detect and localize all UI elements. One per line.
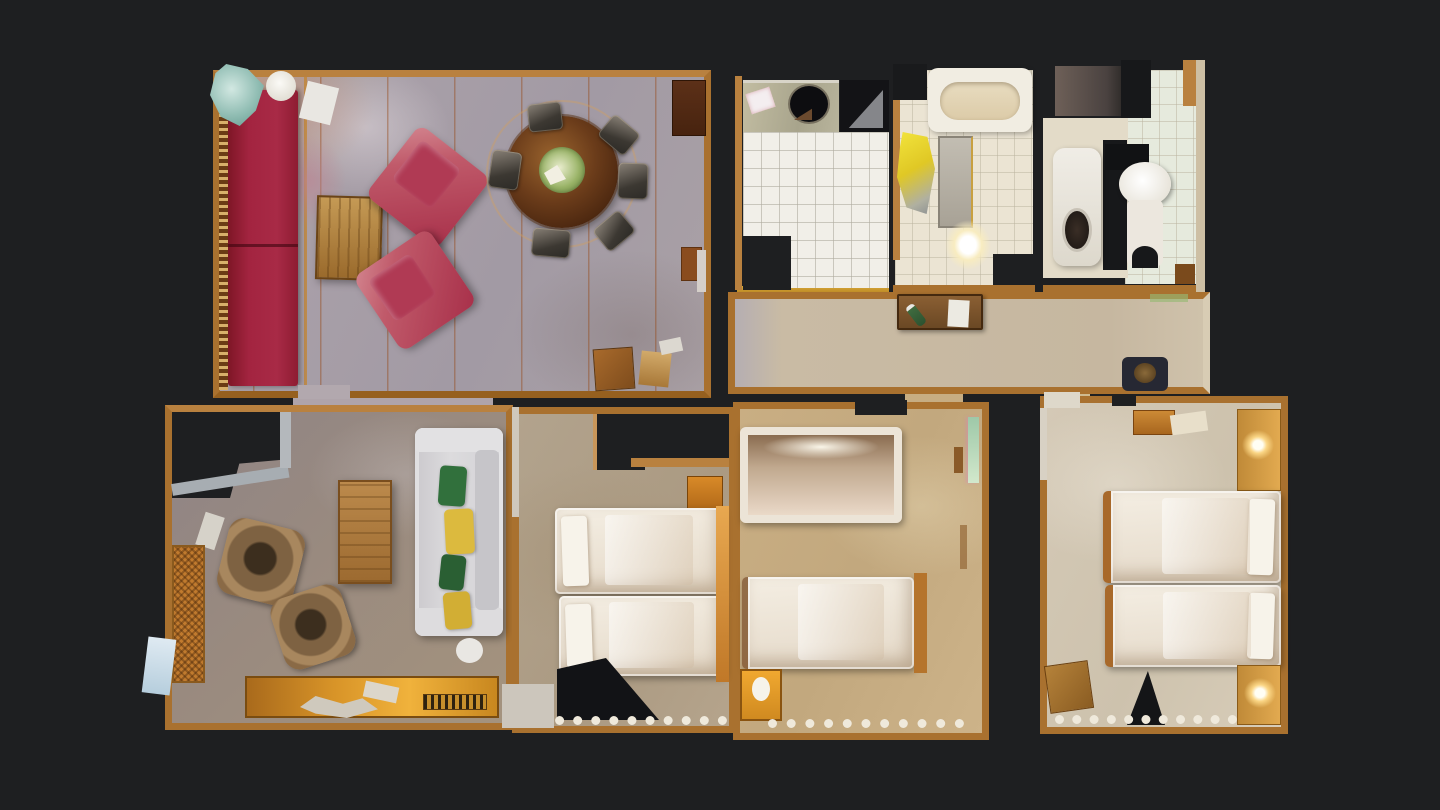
writing-desk <box>593 347 636 392</box>
radiator <box>172 545 205 683</box>
white-spot <box>456 638 483 663</box>
yellow-pillow <box>442 591 472 630</box>
wc-dark-panel <box>1055 66 1129 116</box>
toilet-pedestal <box>1127 200 1163 266</box>
door-leaf <box>697 250 706 292</box>
curtain-ruffle <box>768 719 964 728</box>
sofa-armrest <box>415 428 503 452</box>
room-bedroom-2 <box>733 402 989 740</box>
wall-gap <box>1112 394 1136 406</box>
orange-nightstand <box>740 669 782 721</box>
framed-bed <box>740 427 902 523</box>
duvet-fold <box>1163 592 1250 659</box>
duvet-fold <box>609 602 695 668</box>
duvet-fold <box>605 515 692 586</box>
bathtub <box>928 68 1032 132</box>
floorplan-canvas[interactable] <box>0 0 1440 810</box>
glowing-fixture <box>945 220 991 270</box>
wc-south-wall <box>1043 285 1196 292</box>
lamp <box>752 677 770 701</box>
kitchen-stove <box>840 80 889 132</box>
room-sitting <box>165 405 513 730</box>
curtain-ruffle <box>1055 715 1237 724</box>
pedestal-basin <box>1053 148 1101 266</box>
wood-coffee-table <box>338 480 392 584</box>
green-door <box>968 417 979 483</box>
wooden-chair <box>1044 660 1094 714</box>
bedroom3-west-wall <box>1040 408 1047 480</box>
room-bedroom-3 <box>1040 396 1288 734</box>
dining-chair <box>488 149 523 191</box>
lamp-glow <box>1244 678 1276 708</box>
lamp-glow <box>1242 430 1274 460</box>
room-living-dining <box>213 70 711 398</box>
dining-chair <box>617 162 648 199</box>
paper-sheet <box>947 299 969 327</box>
bag-pattern <box>1134 363 1156 383</box>
desk-chair <box>638 351 671 388</box>
kitchen-sink <box>788 84 830 124</box>
tall-cabinet <box>672 80 706 136</box>
room-hallway <box>728 292 1210 394</box>
duvet-fold <box>1162 498 1250 573</box>
headboard-top <box>1237 409 1281 491</box>
armchair-cushion <box>391 139 462 210</box>
white-vase <box>266 71 296 101</box>
room-kitchen <box>735 76 891 290</box>
bathroom-scan-hole <box>893 64 927 100</box>
wall-block <box>502 684 554 728</box>
single-bed <box>742 577 914 669</box>
dining-chair <box>527 101 564 132</box>
dark-bag <box>1122 357 1168 391</box>
twin-bed-2 <box>1105 585 1281 667</box>
bedroom1-west-wall <box>512 407 519 517</box>
armchair-cushion <box>368 253 438 323</box>
pillow <box>1247 499 1276 576</box>
bathroom-south-wall <box>893 285 1035 292</box>
headboard-bottom <box>1237 665 1281 725</box>
wc-north-wall <box>1183 60 1196 106</box>
twin-bed-1 <box>1103 491 1281 583</box>
table-centerpiece <box>539 147 585 193</box>
pillow <box>565 604 593 669</box>
twin-bed-1 <box>555 508 723 594</box>
door-reflection <box>1150 294 1188 302</box>
red-sofa <box>228 90 298 386</box>
wall-mark <box>954 447 963 473</box>
lamp-sheen <box>763 435 880 459</box>
wall-gap <box>855 400 907 415</box>
stool <box>1133 410 1175 435</box>
wall-band <box>631 458 729 467</box>
cream-object <box>1170 411 1208 436</box>
toilet-base-shadow <box>1132 246 1158 268</box>
pillow <box>1247 593 1275 660</box>
lamplit-wall <box>716 506 729 682</box>
sofa-backrest <box>475 450 499 610</box>
basin-bowl <box>1062 208 1092 252</box>
wc-scan-gap-2 <box>1121 60 1151 118</box>
wall-mark <box>960 525 967 569</box>
room-wc <box>1043 60 1205 292</box>
corner-scan-hole <box>631 414 729 462</box>
room-bathroom <box>893 64 1035 292</box>
wall-stub <box>280 412 291 468</box>
bathtub-basin <box>940 82 1020 120</box>
stove-reflection <box>845 90 883 128</box>
yellow-pillow <box>444 508 475 554</box>
green-pillow <box>438 465 468 507</box>
wood-scrap <box>1175 264 1195 284</box>
footboard <box>914 573 927 673</box>
pillow <box>561 516 589 587</box>
dining-chair <box>531 227 571 258</box>
curtain-ruffle <box>537 716 727 725</box>
south-doorway <box>298 385 350 399</box>
duvet-fold <box>798 584 884 659</box>
wall-block <box>1044 392 1080 408</box>
vent-grille <box>423 694 487 710</box>
washing-machine <box>938 136 973 228</box>
green-pillow <box>438 554 467 591</box>
kitchen-scan-hole <box>743 236 791 290</box>
